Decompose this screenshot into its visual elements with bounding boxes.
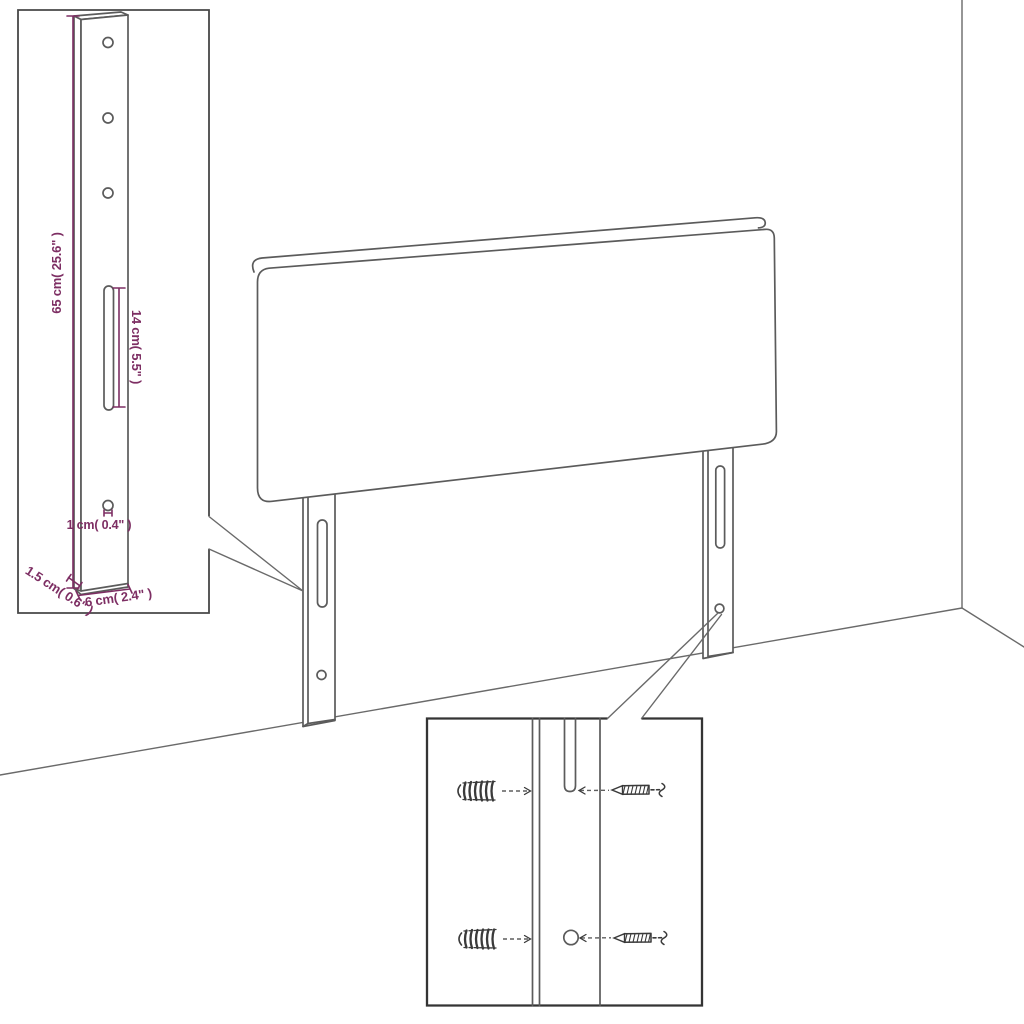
- leg-inset-callout: [209, 517, 303, 592]
- leg-detail-inset: 65 cm( 25.6" ) 14 cm( 5.5" ) 1 cm( 0.4" …: [18, 10, 209, 618]
- left-leg-slot: [318, 520, 328, 607]
- headboard-right-leg: [703, 446, 733, 659]
- leg-hole-3: [103, 188, 113, 198]
- leg-hole-4: [103, 501, 113, 511]
- callout-lines: [209, 517, 722, 719]
- leg-hole-2: [103, 113, 113, 123]
- headboard-assembly-diagram: 65 cm( 25.6" ) 14 cm( 5.5" ) 1 cm( 0.4" …: [0, 0, 1024, 1024]
- headboard-panel: [253, 218, 777, 502]
- panel-front-face: [258, 229, 777, 501]
- hardware-detail-inset: [427, 719, 702, 1006]
- leg-side-face: [74, 16, 81, 591]
- hole-dim-label: 1 cm( 0.4" ): [67, 518, 132, 532]
- right-leg-hole: [715, 604, 724, 613]
- left-leg-hole: [317, 671, 326, 680]
- right-leg-slot: [716, 466, 725, 548]
- slot-dim-label: 14 cm( 5.5" ): [129, 310, 144, 384]
- floor-line-right: [962, 608, 1024, 647]
- leg-slot: [104, 286, 114, 410]
- leg-strip-hole: [564, 930, 578, 944]
- headboard-left-leg: [303, 494, 335, 727]
- height-dim-label: 65 cm( 25.6" ): [49, 232, 64, 313]
- leg-detail-drawing: [74, 12, 128, 595]
- leg-hole-1: [103, 38, 113, 48]
